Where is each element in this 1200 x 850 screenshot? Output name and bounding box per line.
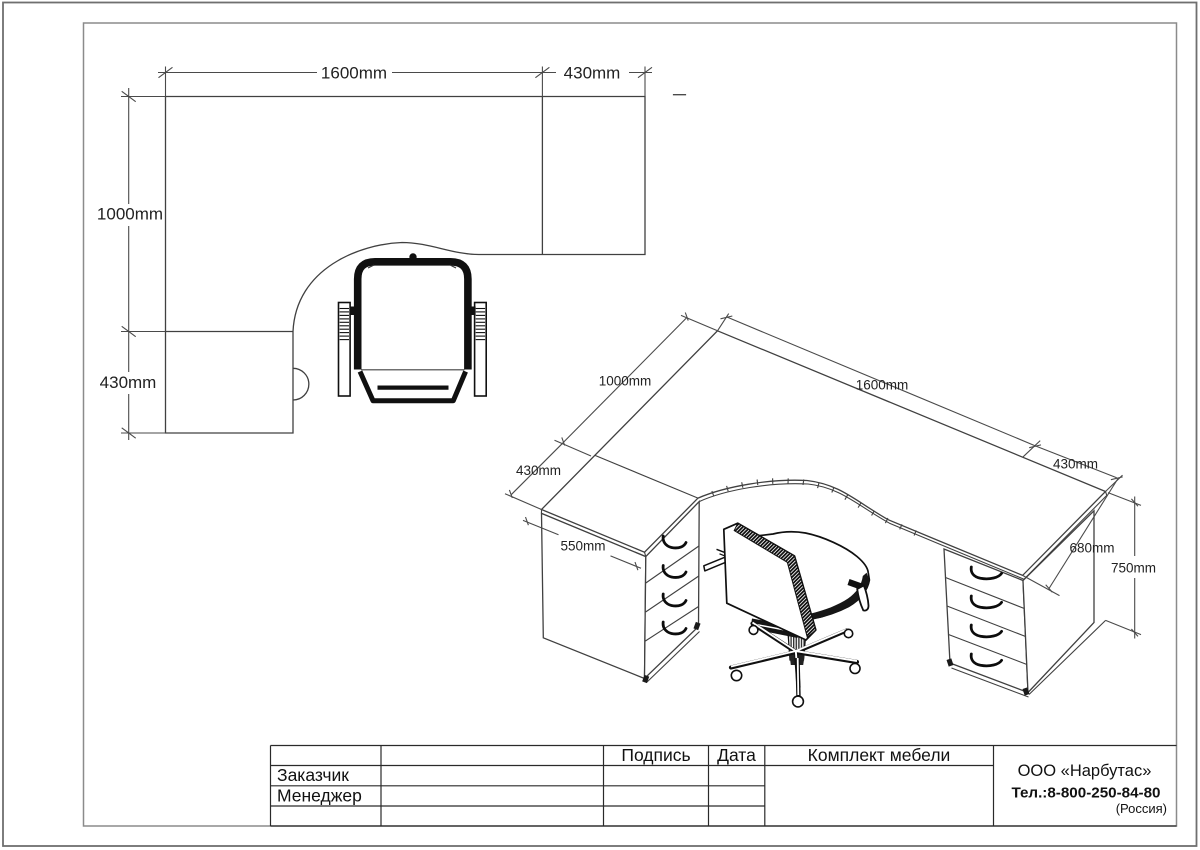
svg-text:Дата: Дата [717, 745, 756, 765]
svg-text:1600mm: 1600mm [856, 378, 909, 393]
svg-text:1000mm: 1000mm [97, 205, 163, 224]
svg-text:750mm: 750mm [1111, 561, 1156, 576]
svg-text:Заказчик: Заказчик [277, 765, 349, 785]
svg-text:550mm: 550mm [560, 539, 605, 554]
svg-text:430mm: 430mm [516, 463, 561, 478]
svg-text:680mm: 680mm [1069, 541, 1114, 556]
svg-text:ООО «Нарбутас»: ООО «Нарбутас» [1018, 762, 1152, 780]
svg-text:1000mm: 1000mm [599, 374, 652, 389]
svg-text:(Россия): (Россия) [1116, 801, 1167, 816]
svg-text:430mm: 430mm [1053, 457, 1098, 472]
svg-text:Менеджер: Менеджер [277, 786, 362, 806]
svg-text:430mm: 430mm [564, 64, 621, 83]
svg-text:Подпись: Подпись [621, 745, 690, 765]
svg-text:Тел.:8-800-250-84-80: Тел.:8-800-250-84-80 [1011, 785, 1160, 802]
svg-text:1600mm: 1600mm [321, 64, 387, 83]
svg-text:Комплект мебели: Комплект мебели [808, 745, 951, 765]
svg-text:430mm: 430mm [100, 373, 157, 392]
